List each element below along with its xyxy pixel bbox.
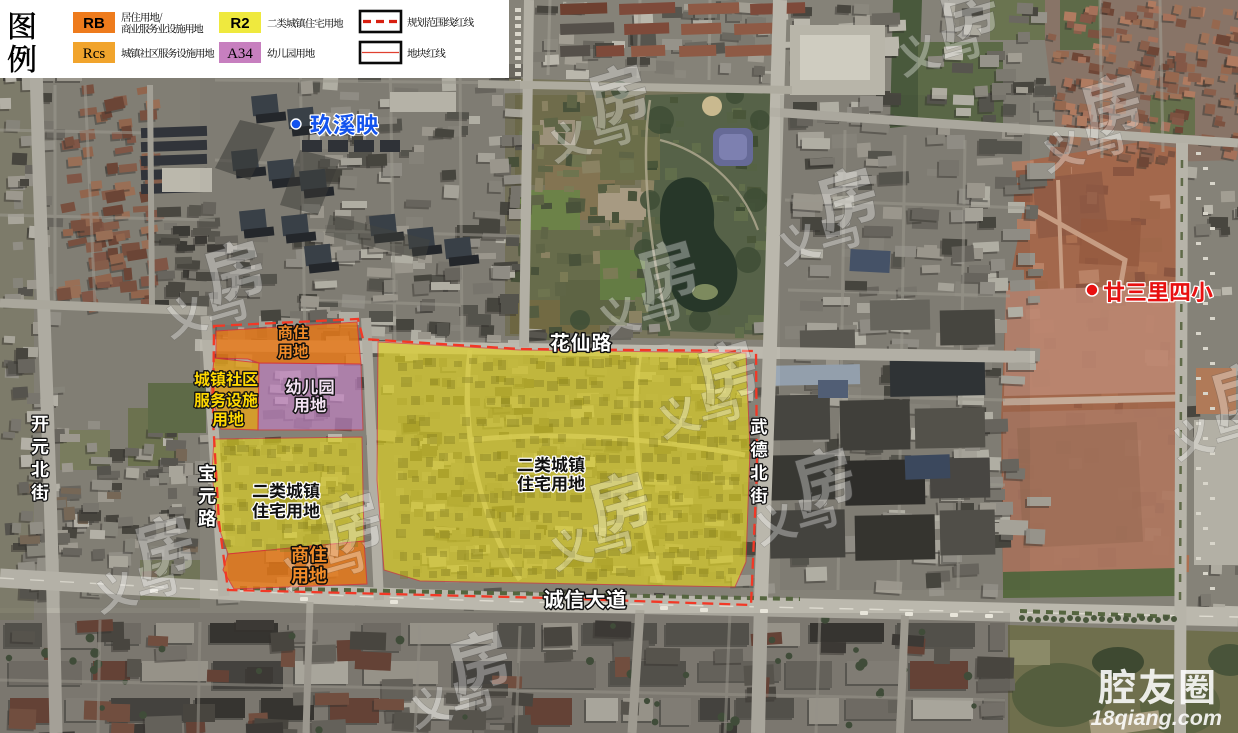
svg-text:18qiang.com: 18qiang.com [1091, 706, 1222, 730]
svg-text:Rcs: Rcs [83, 46, 106, 62]
svg-text:R2: R2 [230, 15, 249, 32]
svg-text:RB: RB [83, 15, 105, 32]
svg-text:A34: A34 [227, 46, 253, 62]
